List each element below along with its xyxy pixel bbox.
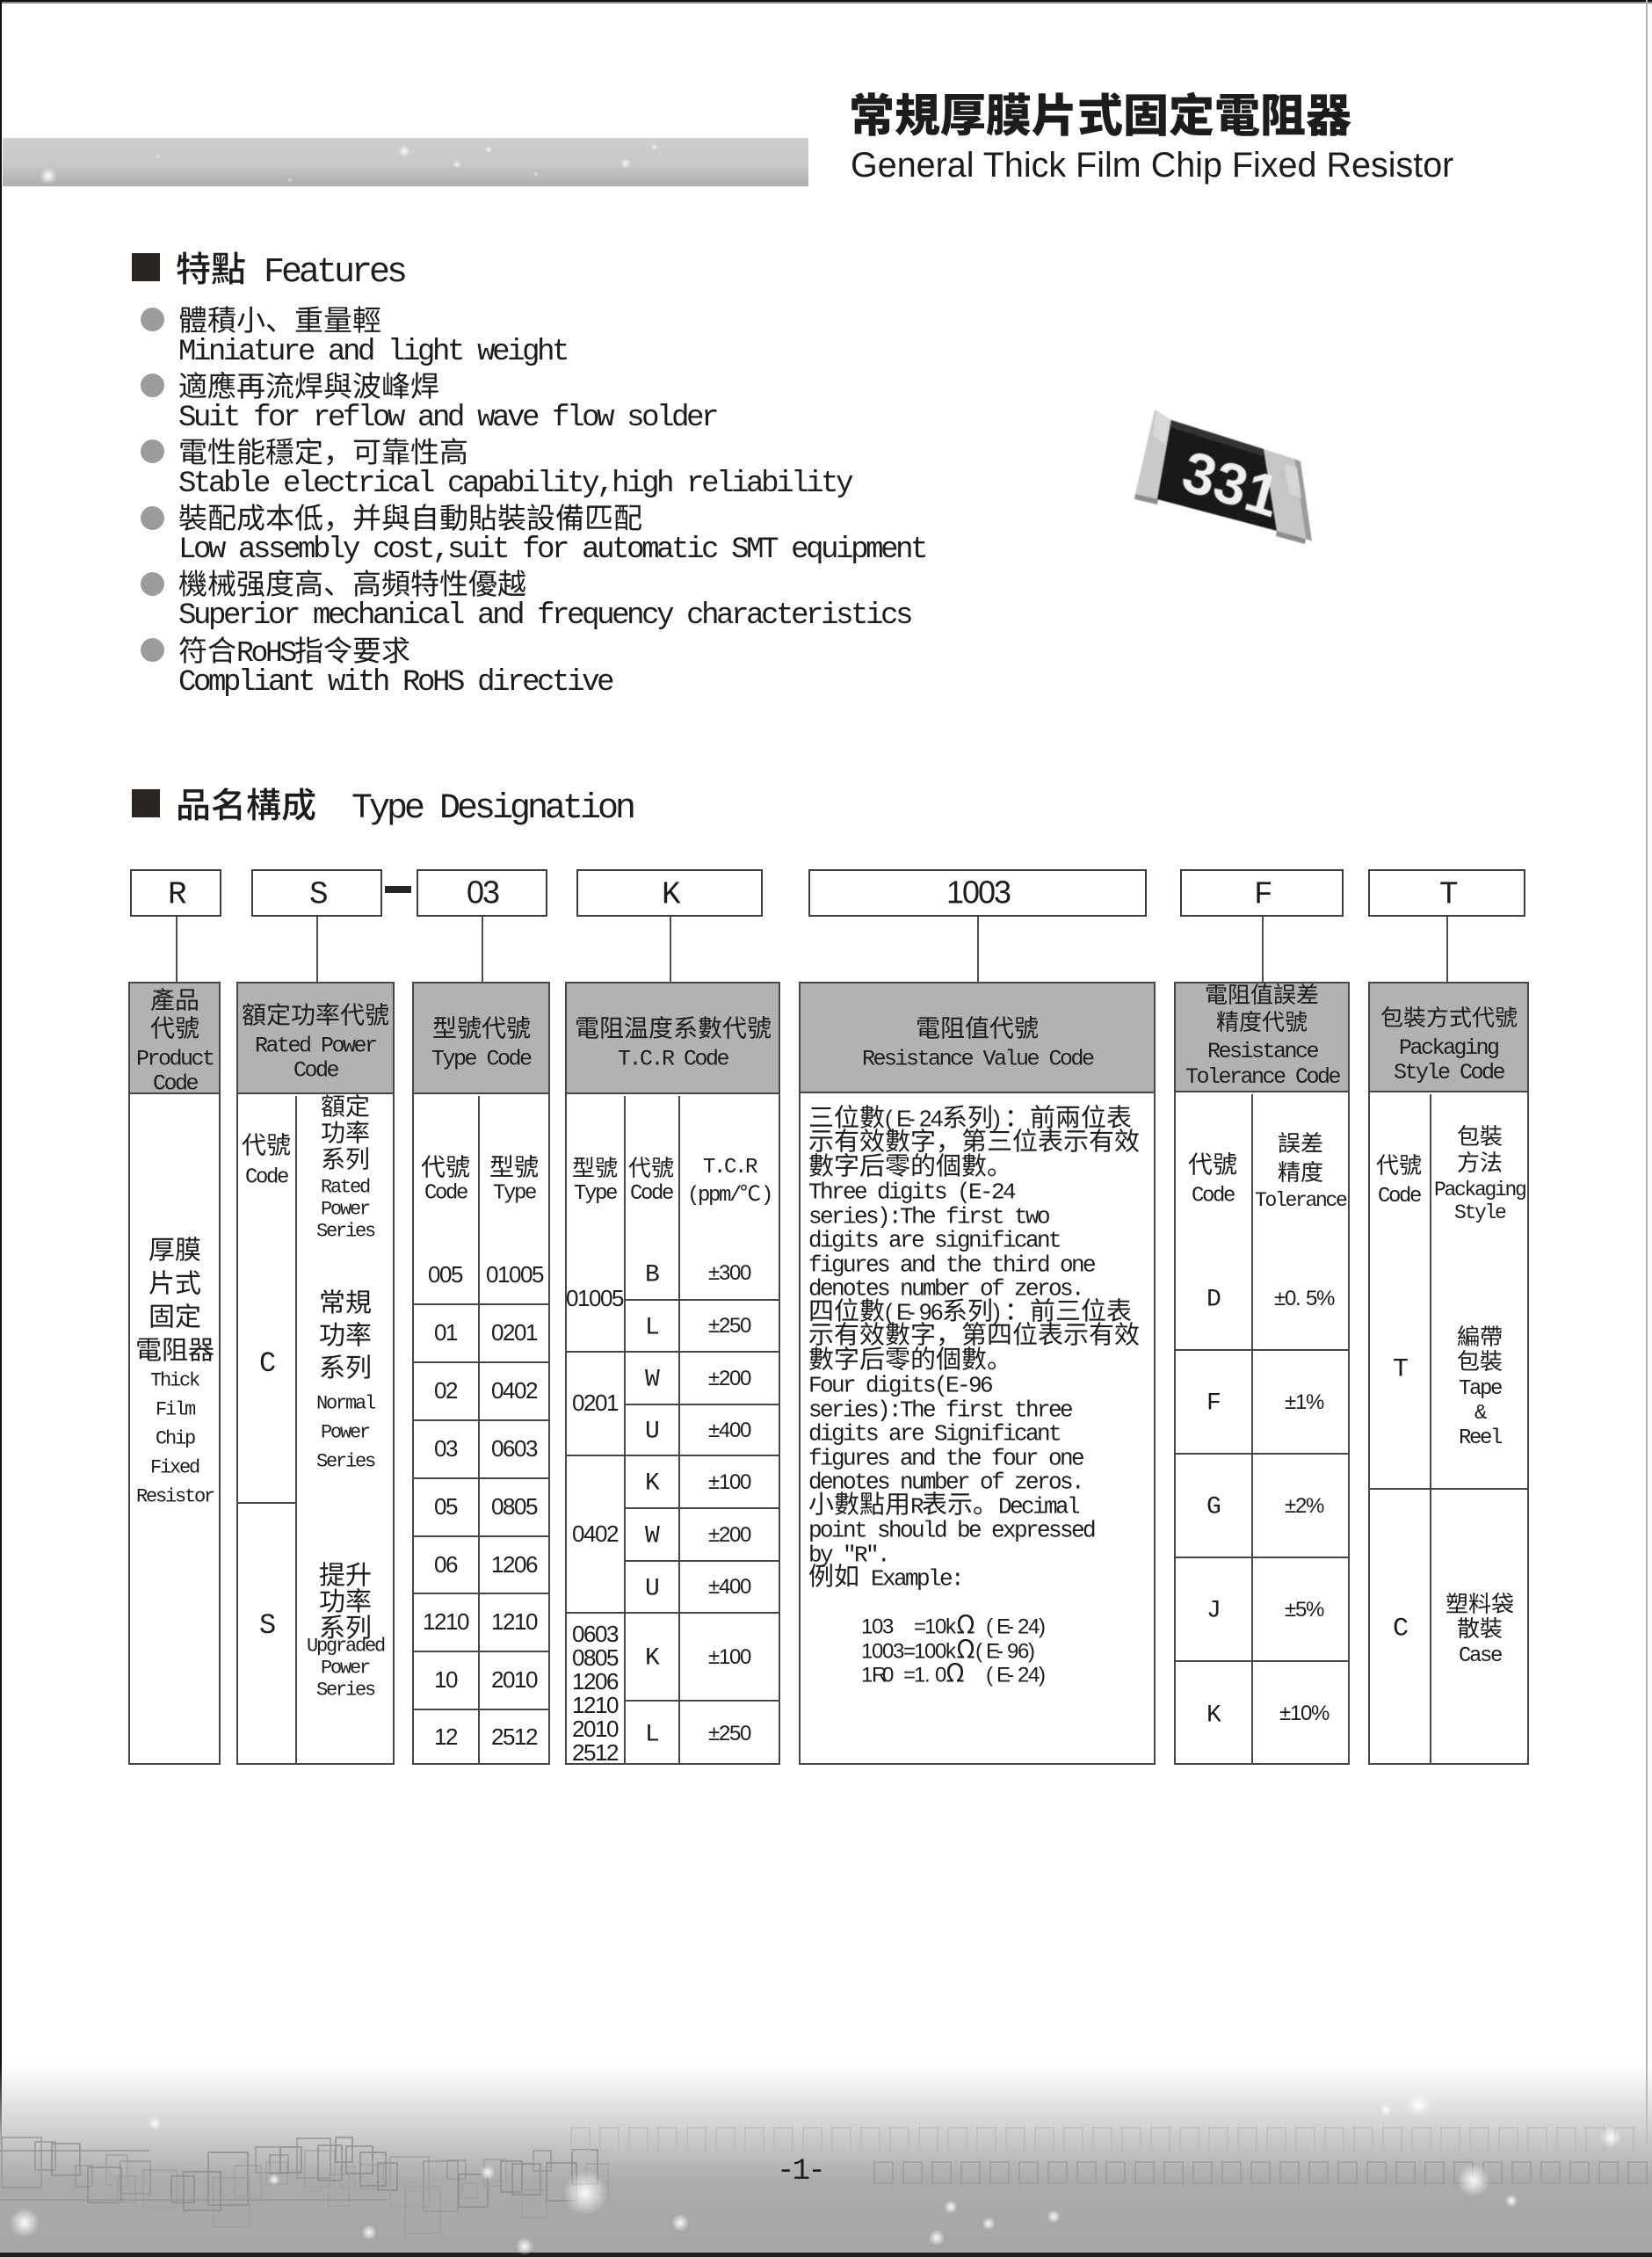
svg-text:G: G (1206, 1494, 1221, 1521)
svg-text:±300: ±300 (708, 1262, 751, 1286)
svg-text:L: L (645, 1315, 660, 1342)
svg-text:0402: 0402 (572, 1520, 619, 1546)
svg-text:1210: 1210 (423, 1608, 469, 1635)
svg-text:Series: Series (316, 1220, 376, 1242)
svg-text:Tolerance: Tolerance (1255, 1189, 1348, 1212)
svg-text:Resistor: Resistor (136, 1485, 215, 1507)
svg-text:W: W (645, 1523, 660, 1550)
svg-text:02: 02 (434, 1377, 458, 1404)
svg-text:U: U (645, 1419, 660, 1446)
svg-text:05: 05 (434, 1493, 458, 1520)
svg-text:T: T (1439, 877, 1459, 913)
svg-text:B: B (645, 1262, 660, 1289)
svg-text:L: L (645, 1722, 660, 1749)
svg-text:RoHS: RoHS (236, 637, 297, 670)
svg-text:0805: 0805 (572, 1644, 619, 1671)
svg-text:±100: ±100 (708, 1470, 751, 1494)
svg-text:0805: 0805 (491, 1493, 538, 1520)
svg-text:2512: 2512 (491, 1724, 538, 1750)
svg-text:U: U (645, 1576, 660, 1603)
svg-text:1206: 1206 (572, 1668, 619, 1695)
svg-text:Code: Code (1378, 1185, 1422, 1208)
svg-text:±100: ±100 (708, 1645, 751, 1669)
svg-text:K: K (662, 877, 681, 913)
svg-text:W: W (645, 1367, 660, 1394)
svg-text:±250: ±250 (708, 1315, 751, 1339)
svg-text:R: R (168, 877, 187, 913)
svg-text:F: F (1254, 877, 1273, 913)
svg-text:06: 06 (434, 1550, 458, 1577)
svg-text:Code: Code (1192, 1185, 1235, 1208)
svg-text:K: K (1206, 1702, 1221, 1730)
svg-text:±5%: ±5% (1285, 1598, 1324, 1622)
svg-text:F: F (1206, 1390, 1221, 1418)
svg-text:01005: 01005 (486, 1261, 544, 1288)
svg-text:2512: 2512 (572, 1739, 619, 1766)
svg-text:Chip: Chip (156, 1427, 196, 1449)
svg-text:K: K (645, 1470, 660, 1498)
svg-text:T.C.R: T.C.R (703, 1156, 757, 1179)
svg-text:Code: Code (245, 1166, 289, 1190)
svg-text:03: 03 (434, 1435, 458, 1462)
svg-text:0603: 0603 (572, 1621, 619, 1647)
svg-text:10: 10 (434, 1666, 458, 1693)
svg-text:Normal: Normal (316, 1392, 376, 1414)
svg-text:Series: Series (316, 1679, 376, 1701)
svg-text:1210: 1210 (491, 1608, 538, 1635)
svg-text:TypeDesignation: TypeDesignation (351, 789, 636, 829)
svg-text:±2%: ±2% (1285, 1494, 1324, 1518)
svg-text:Packaging: Packaging (1399, 1035, 1500, 1061)
svg-text:&: & (1474, 1402, 1487, 1426)
svg-text:Type: Type (493, 1182, 537, 1206)
svg-text:(E-24): (E-24) (986, 1664, 1046, 1687)
svg-text:Code: Code (630, 1182, 674, 1206)
svg-text:Resistance: Resistance (1207, 1039, 1320, 1064)
svg-text:C: C (1393, 1614, 1409, 1644)
svg-text:1R0=1.0: 1R0=1.0 (861, 1664, 946, 1687)
svg-text:0402: 0402 (491, 1377, 538, 1404)
svg-text:2010: 2010 (572, 1716, 619, 1742)
svg-text:0603: 0603 (491, 1435, 538, 1462)
svg-text:Film: Film (156, 1398, 196, 1420)
svg-text:Tape: Tape (1459, 1377, 1503, 1401)
svg-text:0201: 0201 (491, 1319, 538, 1346)
svg-text:Thick: Thick (150, 1369, 200, 1391)
svg-text:Code: Code (424, 1182, 468, 1206)
svg-text:ToleranceCode: ToleranceCode (1185, 1064, 1342, 1090)
svg-text:Example:: Example: (871, 1566, 965, 1593)
svg-text:StyleCode: StyleCode (1394, 1060, 1506, 1085)
svg-text:T: T (1393, 1354, 1409, 1384)
svg-text:±400: ±400 (708, 1419, 751, 1442)
svg-text:Power: Power (321, 1198, 371, 1220)
svg-text:C: C (259, 1347, 276, 1380)
svg-text:0201: 0201 (572, 1390, 619, 1416)
svg-text:K: K (645, 1645, 660, 1673)
svg-text:005: 005 (428, 1261, 463, 1288)
svg-text:): ) (761, 1184, 773, 1208)
svg-text:12: 12 (434, 1724, 458, 1750)
svg-text:Power: Power (321, 1421, 371, 1443)
svg-text:(ppm/: (ppm/ (687, 1184, 742, 1208)
svg-text:Fixed: Fixed (150, 1456, 200, 1478)
svg-text:01: 01 (434, 1319, 458, 1346)
svg-text:±1%: ±1% (1285, 1390, 1324, 1414)
svg-text:Rated: Rated (321, 1176, 371, 1198)
svg-text:01005: 01005 (566, 1285, 624, 1311)
svg-text:Type: Type (574, 1182, 618, 1206)
svg-text:1210: 1210 (572, 1692, 619, 1718)
svg-text:S: S (309, 877, 329, 913)
svg-text:D: D (1206, 1287, 1221, 1314)
svg-text:J: J (1206, 1598, 1221, 1625)
svg-text:Code: Code (153, 1071, 199, 1097)
svg-text:Reel: Reel (1459, 1426, 1503, 1450)
svg-text:Style: Style (1454, 1201, 1507, 1224)
svg-text:±250: ±250 (708, 1722, 751, 1745)
svg-text:Case: Case (1459, 1644, 1503, 1668)
svg-text:Power: Power (321, 1657, 371, 1679)
svg-text:T.C.RCode: T.C.RCode (618, 1047, 730, 1072)
svg-text:1003: 1003 (946, 874, 1011, 911)
svg-text:03: 03 (467, 874, 500, 911)
svg-text:±200: ±200 (708, 1523, 751, 1547)
svg-text:±0.5%: ±0.5% (1274, 1287, 1335, 1310)
svg-text:1206: 1206 (491, 1550, 538, 1577)
svg-text:Code: Code (293, 1058, 340, 1084)
svg-text:Series: Series (316, 1450, 376, 1472)
svg-text:±400: ±400 (708, 1576, 751, 1600)
svg-text:Features: Features (264, 253, 408, 293)
svg-text:Upgraded: Upgraded (307, 1635, 386, 1657)
svg-text:2010: 2010 (491, 1666, 538, 1693)
svg-text:±10%: ±10% (1279, 1702, 1330, 1726)
svg-text:S: S (259, 1609, 276, 1642)
svg-text:±200: ±200 (708, 1367, 751, 1390)
